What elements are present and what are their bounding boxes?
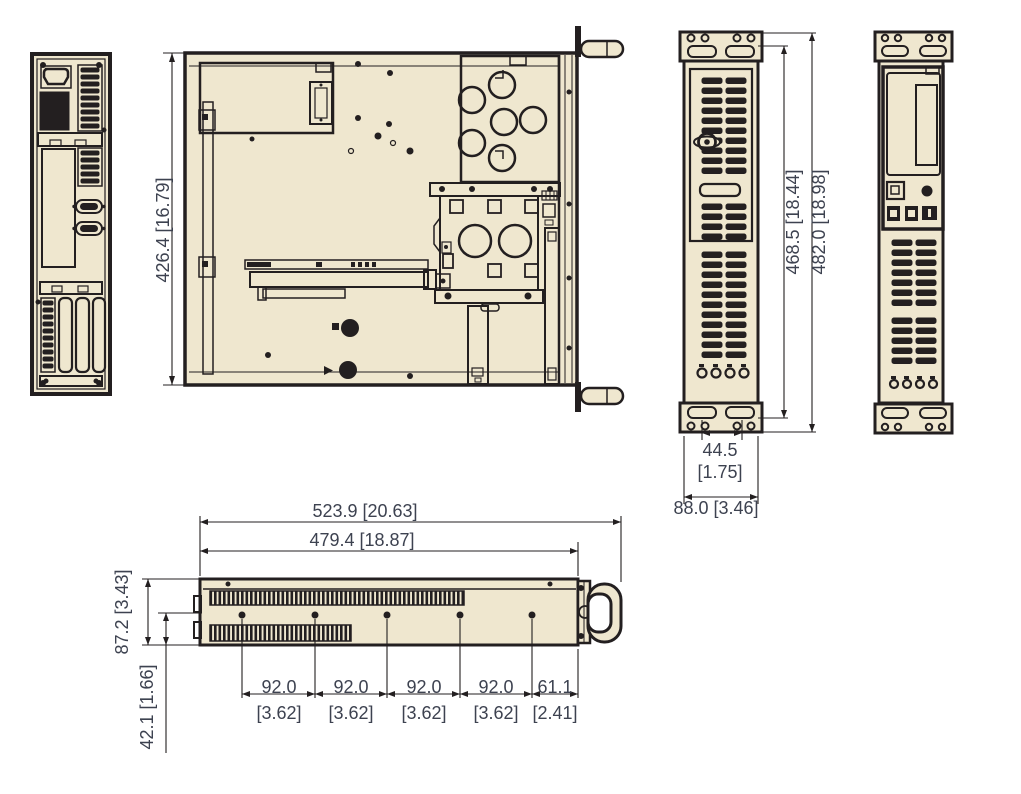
dim-hole-spacing-in-1: [3.62] bbox=[249, 703, 309, 723]
rack-ear-top bbox=[680, 32, 762, 61]
rear-vent-column-upper bbox=[78, 65, 102, 131]
top-body-outline bbox=[185, 53, 577, 385]
dim-hole-spacing-in-2: [3.62] bbox=[321, 703, 381, 723]
dim-top-depth: 426.4 [16.79] bbox=[153, 160, 173, 300]
dim-hole-spacing-in-4: [3.62] bbox=[466, 703, 526, 723]
dim-hole-spacing-mm-1: 92.0 bbox=[249, 677, 309, 697]
dim-hole-spacing-mm-4: 92.0 bbox=[466, 677, 526, 697]
dim-front-rack-opening: 468.5 [18.44] bbox=[783, 147, 803, 297]
rack-ear-top bbox=[875, 32, 952, 61]
dim-side-overall-length: 523.9 [20.63] bbox=[290, 501, 440, 521]
rack-ear-bottom bbox=[680, 403, 762, 432]
dim-hole-spacing-mm-2: 92.0 bbox=[321, 677, 381, 697]
dim-side-body-length: 479.4 [18.87] bbox=[287, 530, 437, 550]
front-handle-top bbox=[575, 26, 623, 57]
dim-front-overall-height: 482.0 [18.98] bbox=[809, 147, 829, 297]
dim-side-height: 87.2 [3.43] bbox=[112, 552, 132, 672]
chassis-dimension-drawing: 426.4 [16.79] 468.5 [18.44] 482.0 [18.98… bbox=[0, 0, 1021, 794]
rear-view bbox=[30, 52, 112, 396]
front-view-open bbox=[864, 26, 964, 438]
front-ports bbox=[887, 206, 937, 221]
front-handle-bottom bbox=[575, 382, 623, 412]
side-vent-strip-lower bbox=[210, 625, 351, 641]
rack-ear-bottom bbox=[875, 404, 952, 433]
front-handle bbox=[588, 584, 621, 642]
rear-vent-column-lower bbox=[78, 148, 102, 186]
psu-block bbox=[40, 92, 69, 130]
power-button bbox=[922, 186, 933, 197]
dim-hole-spacing-mm-3: 92.0 bbox=[394, 677, 454, 697]
top-view bbox=[146, 24, 640, 419]
dim-front-ear-span-in: [1.75] bbox=[685, 462, 755, 482]
dim-hole-spacing-in-5: [2.41] bbox=[525, 703, 585, 723]
dim-front-body-width: 88.0 [3.46] bbox=[651, 498, 781, 518]
dim-hole-spacing-in-3: [3.62] bbox=[394, 703, 454, 723]
dim-side-hole-offset: 42.1 [1.66] bbox=[137, 647, 157, 767]
side-vent-strip-upper bbox=[210, 591, 464, 605]
dim-hole-spacing-mm-5: 61.1 bbox=[525, 677, 585, 697]
dim-front-ear-span-mm: 44.5 bbox=[685, 440, 755, 460]
